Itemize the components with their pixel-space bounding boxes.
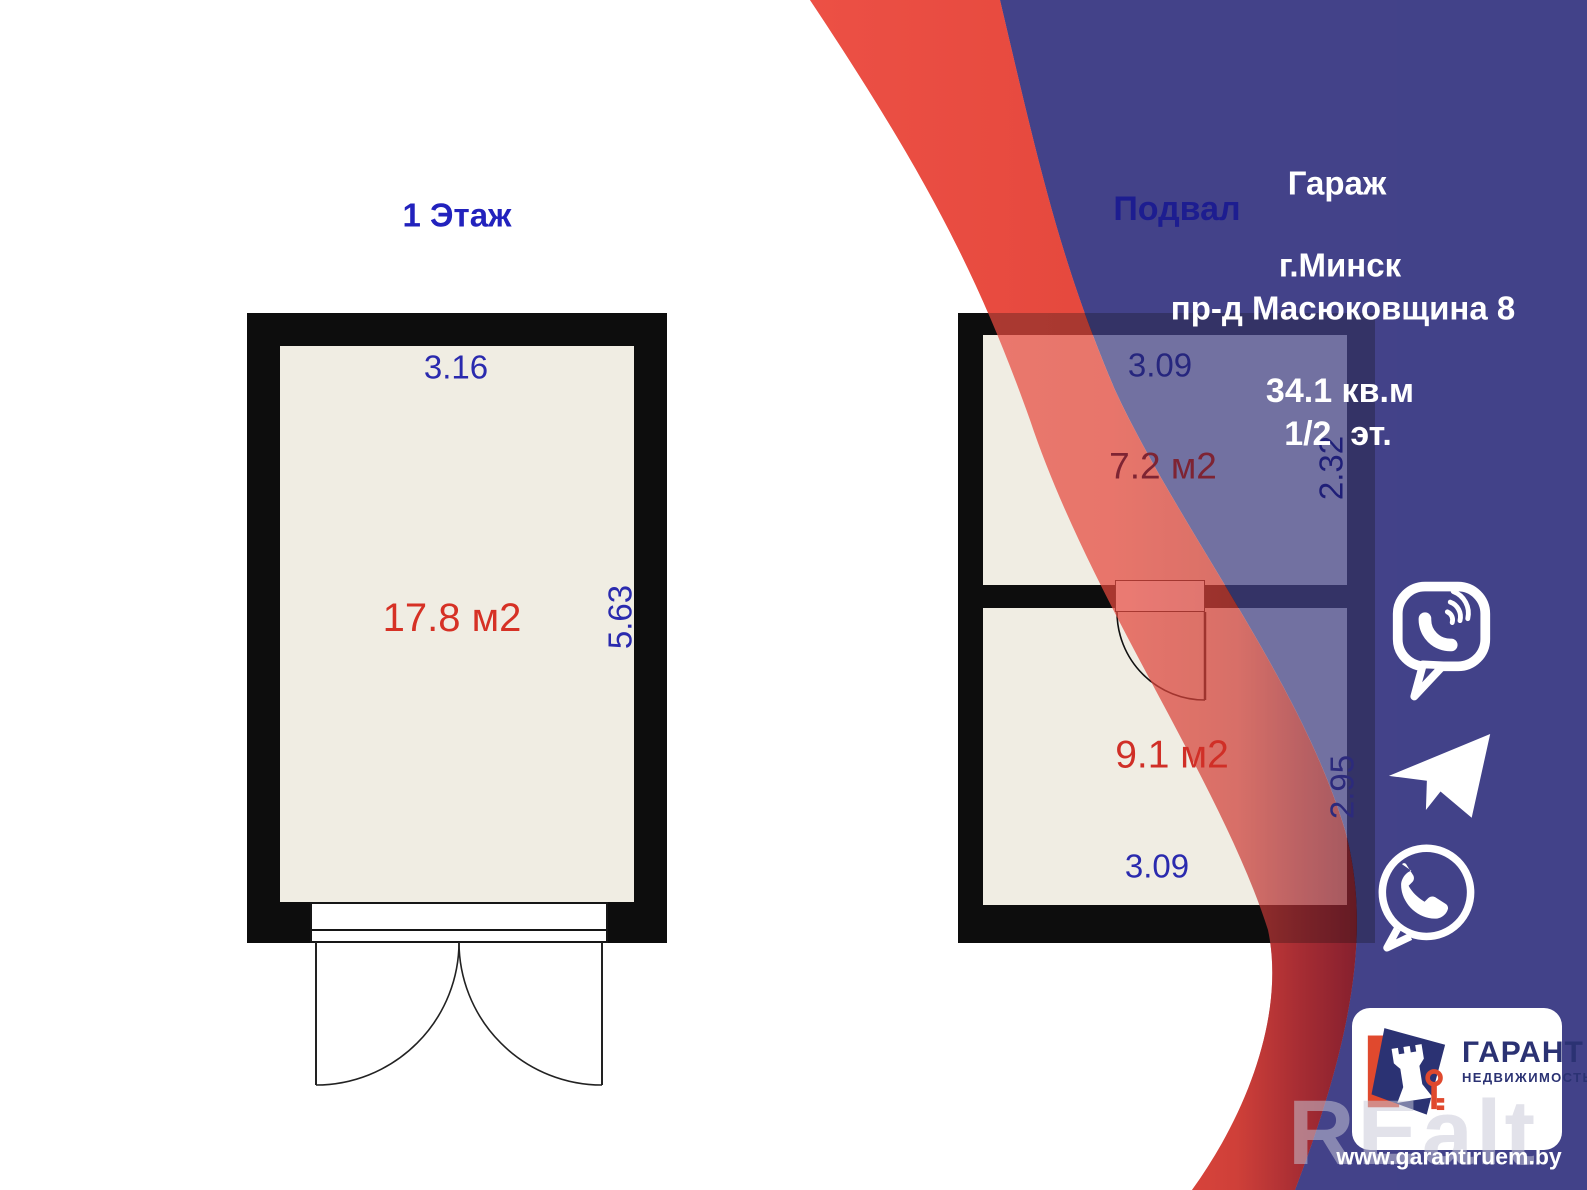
agency-website-link[interactable]: www.garantiruem.by	[1336, 1144, 1561, 1171]
door-arc-right	[459, 942, 602, 1085]
basement-room-bottom-area: 9.1 м2	[1115, 736, 1229, 777]
floor1-side-dimension: 5.63	[604, 585, 637, 649]
garage-door-threshold	[310, 902, 608, 943]
whatsapp-icon[interactable]	[1372, 838, 1480, 958]
basement-door-gap	[1115, 580, 1205, 612]
basement-title: Подвал	[1113, 192, 1240, 228]
agency-name: ГАРАНТ	[1462, 1036, 1584, 1070]
total-area-label: 34.1 кв.м	[1266, 374, 1414, 410]
telegram-icon[interactable]	[1385, 722, 1497, 822]
door-arc-left	[316, 942, 459, 1085]
floor1-top-dimension: 3.16	[424, 351, 488, 386]
floor1-area-label: 17.8 м2	[383, 597, 522, 639]
flyer-canvas: 1 Этаж 3.16 5.63 17.8 м2 Подвал 3.09 7.2…	[0, 0, 1587, 1190]
basement-room-top-area: 7.2 м2	[1109, 448, 1217, 487]
viber-icon[interactable]	[1388, 577, 1495, 707]
city-label: г.Минск	[1279, 249, 1401, 284]
floor-number-label: 1/2 эт.	[1284, 417, 1392, 453]
basement-top-dimension: 3.09	[1128, 349, 1192, 384]
floor1-title: 1 Этаж	[403, 199, 512, 234]
address-label: пр-д Масюковщина 8	[1171, 292, 1515, 327]
basement-room-bottom-side-dimension: 2.95	[1326, 755, 1359, 819]
threshold-line	[312, 929, 606, 931]
property-type-label: Гараж	[1288, 167, 1387, 202]
basement-bottom-dimension: 3.09	[1125, 850, 1189, 885]
